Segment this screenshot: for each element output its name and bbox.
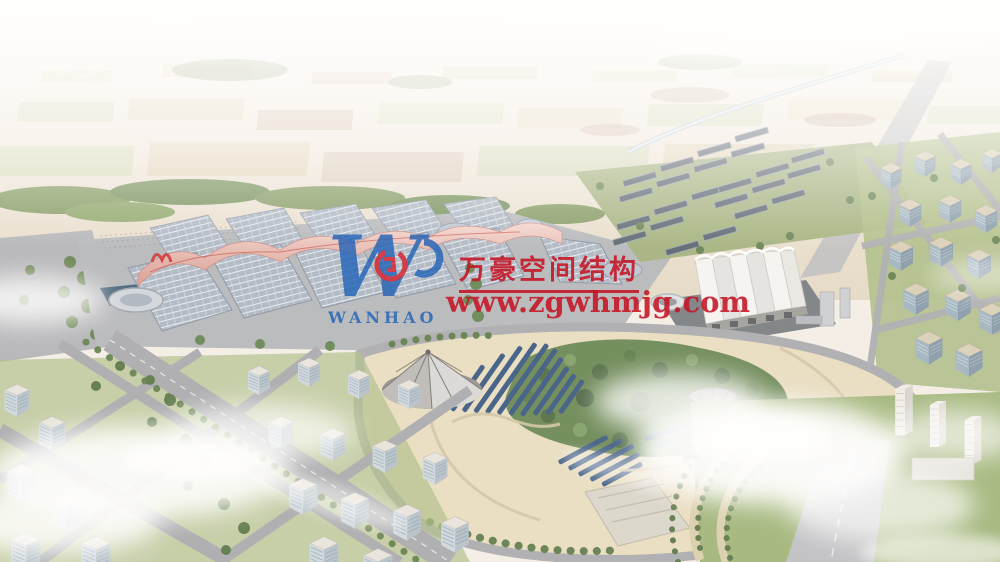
company-logo: W WANHAO	[328, 228, 460, 328]
aerial-rendering: W WANHAO 万豪空间结构 www.zgwhmjg.com	[0, 0, 1000, 562]
logo-latin-name: WANHAO	[328, 308, 437, 327]
watermark-website: www.zgwhmjg.com	[446, 285, 750, 319]
